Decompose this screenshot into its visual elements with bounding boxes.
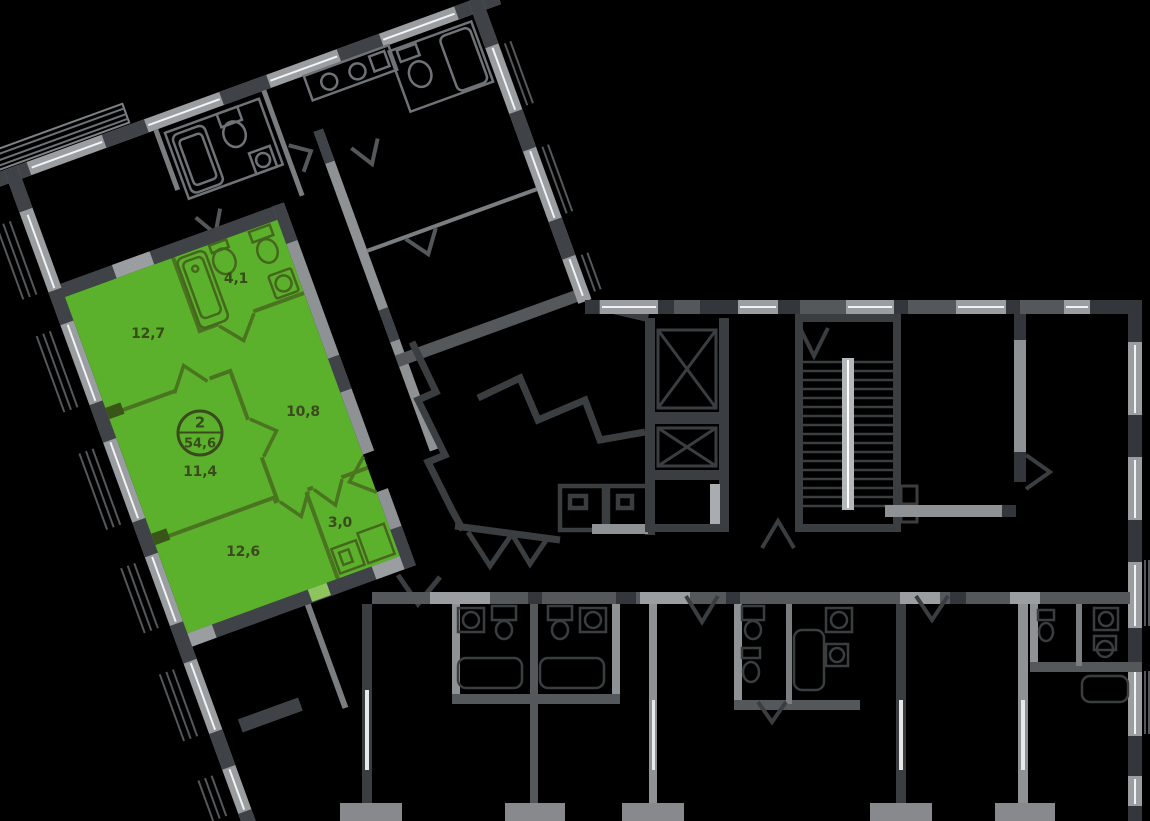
elevator-shaft-2 xyxy=(658,428,716,466)
room-area-label: 10,8 xyxy=(286,404,320,420)
elevator-shaft-1 xyxy=(658,330,716,408)
room-area-label: 12,6 xyxy=(226,544,260,560)
room-area-label: 12,7 xyxy=(131,326,165,342)
right-wing-top-wall xyxy=(585,300,1142,314)
floor-plan-drawing xyxy=(0,0,1150,821)
corridor-door-chevrons xyxy=(686,521,948,622)
room-area-label: 4,1 xyxy=(224,271,248,287)
room-area-label: 3,0 xyxy=(328,515,352,531)
room-area-label: 11,4 xyxy=(183,464,217,480)
floor-plan: 12,7 4,1 10,8 11,4 3,0 12,6 2 54,6 xyxy=(0,0,1150,821)
bottom-right-unit xyxy=(995,604,1142,821)
staircase xyxy=(795,314,917,532)
right-wing-right-wall xyxy=(1128,300,1149,821)
corridor xyxy=(372,314,1130,622)
badge-total-area: 54,6 xyxy=(180,432,221,454)
elevator-block xyxy=(645,318,729,532)
right-wing xyxy=(340,300,1149,821)
bottom-left-units xyxy=(340,604,684,821)
apartment-badge: 2 54,6 xyxy=(177,410,224,457)
utility-rooms xyxy=(560,486,648,530)
badge-rooms-count: 2 xyxy=(180,413,221,432)
bottom-middle-unit xyxy=(734,604,932,821)
